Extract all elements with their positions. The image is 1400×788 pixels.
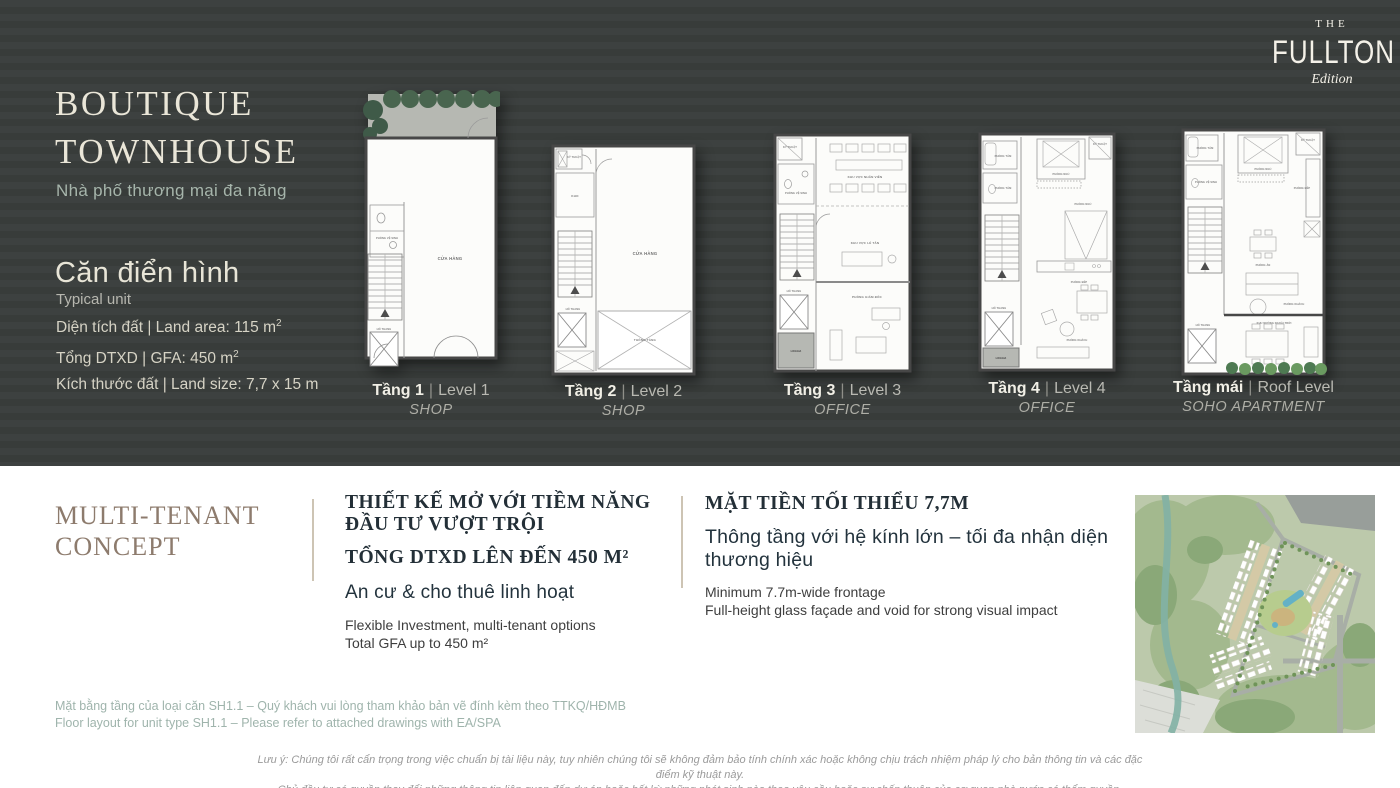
concept-heading-line1: MULTI-TENANT <box>55 500 260 531</box>
plan-type: SHOP <box>362 402 500 418</box>
floorplan-level3-drawing: KỸ THUẬT PHÒNG VỆ SINH HỐ THANG LOGGIA K… <box>772 132 913 374</box>
footnote-en: Floor layout for unit type SH1.1 – Pleas… <box>55 715 626 732</box>
room-label: CỬA HÀNG <box>438 256 463 261</box>
concept-heading-line2: CONCEPT <box>55 531 260 562</box>
plan-floor: Tầng 1 <box>372 382 424 399</box>
floorplan-level3: KỸ THUẬT PHÒNG VỆ SINH HỐ THANG LOGGIA K… <box>772 132 913 374</box>
block1-title: THIẾT KẾ MỞ VỚI TIỀM NĂNG ĐẦU TƯ VƯỢT TR… <box>345 492 665 536</box>
room-label: CỬA HÀNG <box>633 251 658 256</box>
brand-name: FULLTON <box>1272 33 1392 72</box>
plan-label-roof: Tầng mái|Roof Level SOHO APARTMENT <box>1170 379 1337 415</box>
plan-level: Level 2 <box>631 383 683 400</box>
plan-label-level3: Tầng 3|Level 3 OFFICE <box>772 382 913 418</box>
unit-subheading: Typical unit <box>56 291 131 308</box>
unit-specs: Diện tích đất | Land area: 115 m2 Tổng D… <box>56 311 318 399</box>
page-subtitle: Nhà phố thương mại đa năng <box>56 181 287 201</box>
page-title: BOUTIQUE TOWNHOUSE <box>55 80 299 176</box>
floorplan-roof-drawing: PHÒNG TẮM PHÒNG VỆ SINH KỸ THUẬT PHÒNG N… <box>1180 127 1327 377</box>
floorplan-level1-drawing: PHÒNG VỆ SINH HỐ THANG CỬA HÀNG <box>362 90 500 375</box>
block1-en-text: Flexible Investment, multi-tenant option… <box>345 617 665 652</box>
floorplan-level2-drawing: KỸ THUẬT KHO HỐ THANG CỬA HÀNG THÔNG TẦN… <box>550 143 697 378</box>
room-label: KHU VỰC NHÂN VIÊN <box>848 174 883 179</box>
masterplan-map <box>1135 495 1375 733</box>
room-label: THÔNG TẦNG <box>634 337 657 342</box>
floorplan-level2: KỸ THUẬT KHO HỐ THANG CỬA HÀNG THÔNG TẦN… <box>550 143 697 378</box>
plan-floor: Tầng 3 <box>784 382 836 399</box>
plan-floor: Tầng 4 <box>988 380 1040 397</box>
block1-title2: TỔNG DTXD LÊN ĐẾN 450 M² <box>345 547 665 569</box>
plan-label-level2: Tầng 2|Level 2 SHOP <box>550 383 697 419</box>
block2-title: MẶT TIỀN TỐI THIỂU 7,7M <box>705 493 1135 515</box>
spec-gfa: Tổng DTXD | GFA: 450 m2 <box>56 342 318 373</box>
masterplan-map-image <box>1135 495 1375 733</box>
plan-level: Level 1 <box>438 382 490 399</box>
footnote-vn: Mặt bằng tầng của loại căn SH1.1 – Quý k… <box>55 698 626 715</box>
room-label: LOGGIA <box>996 356 1007 360</box>
room-label: KHO <box>571 194 579 198</box>
page-title-line2: TOWNHOUSE <box>55 128 299 176</box>
brand-logo: THE FULLTON Edition <box>1272 18 1392 88</box>
footnote: Mặt bằng tầng của loại căn SH1.1 – Quý k… <box>55 698 626 732</box>
floorplan-level1: PHÒNG VỆ SINH HỐ THANG CỬA HÀNG <box>362 90 500 375</box>
hero-section: BOUTIQUE TOWNHOUSE Nhà phố thương mại đa… <box>0 0 1400 466</box>
floorplan-level4: PHÒNG TẮM PHÒNG TẮM KỸ THUẬT PHÒNG NGỦ P… <box>977 131 1117 373</box>
plan-level: Roof Level <box>1257 379 1334 396</box>
room-label: LOGGIA <box>791 349 802 353</box>
brand-edition: Edition <box>1272 72 1392 88</box>
floorplan-roof: PHÒNG TẮM PHÒNG VỆ SINH KỸ THUẬT PHÒNG N… <box>1180 127 1327 377</box>
spec-land-size: Kích thước đất | Land size: 7,7 x 15 m <box>56 372 318 399</box>
spec-land-area: Diện tích đất | Land area: 115 m2 <box>56 311 318 342</box>
concept-block-frontage: MẶT TIỀN TỐI THIỂU 7,7M Thông tầng với h… <box>705 493 1135 619</box>
block2-vn-text: Thông tầng với hệ kính lớn – tối đa nhận… <box>705 526 1135 572</box>
plan-type: OFFICE <box>772 402 913 418</box>
plan-label-level4: Tầng 4|Level 4 OFFICE <box>977 380 1117 416</box>
vertical-divider <box>312 499 314 581</box>
plan-type: OFFICE <box>977 400 1117 416</box>
block1-vn-text: An cư & cho thuê linh hoạt <box>345 582 665 604</box>
floorplan-level4-drawing: PHÒNG TẮM PHÒNG TẮM KỸ THUẬT PHÒNG NGỦ P… <box>977 131 1117 373</box>
unit-heading: Căn điển hình <box>55 257 239 290</box>
room-label: KHU VỰC LỄ TÂN <box>851 240 879 245</box>
plan-label-level1: Tầng 1|Level 1 SHOP <box>362 382 500 418</box>
vertical-divider <box>681 496 683 588</box>
brochure-page: BOUTIQUE TOWNHOUSE Nhà phố thương mại đa… <box>0 0 1400 788</box>
room-label: PHÒNG GIÁM ĐỐC <box>852 294 883 299</box>
concept-heading: MULTI-TENANT CONCEPT <box>55 500 260 562</box>
plan-floor: Tầng mái <box>1173 379 1243 396</box>
legal-disclaimer: Lưu ý: Chúng tôi rất cẩn trọng trong việ… <box>250 753 1150 788</box>
plan-type: SHOP <box>550 403 697 419</box>
page-title-line1: BOUTIQUE <box>55 80 299 128</box>
concept-block-design: THIẾT KẾ MỞ VỚI TIỀM NĂNG ĐẦU TƯ VƯỢT TR… <box>345 492 665 652</box>
plan-level: Level 3 <box>850 382 902 399</box>
plan-type: SOHO APARTMENT <box>1170 399 1337 415</box>
brand-the: THE <box>1272 18 1392 30</box>
plan-floor: Tầng 2 <box>565 383 617 400</box>
plan-level: Level 4 <box>1054 380 1106 397</box>
block2-en-text: Minimum 7.7m-wide frontage Full-height g… <box>705 584 1135 619</box>
